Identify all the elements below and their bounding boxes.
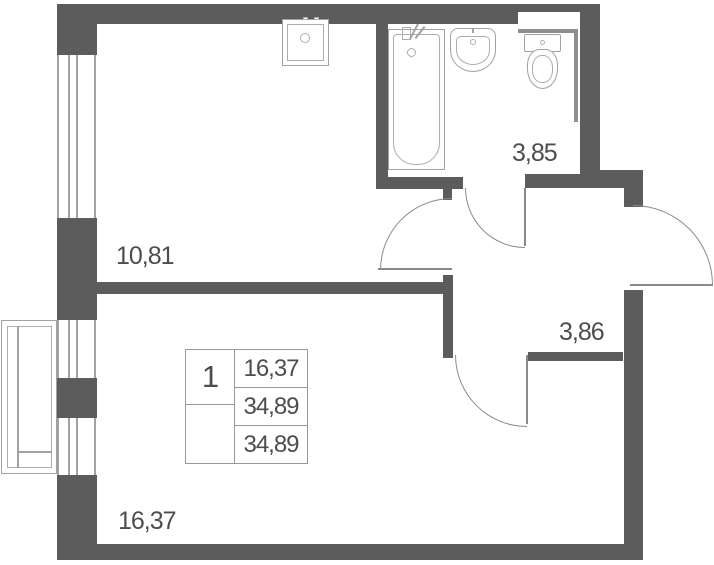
room-label-bathroom: 3,85 <box>512 139 557 168</box>
wall-left-pier-4 <box>57 475 97 560</box>
wall-kitchen-bottom <box>57 282 443 294</box>
window-1-inner-line <box>94 55 96 218</box>
window-1-frame-line-b <box>76 55 78 218</box>
window-3-frame-line-b <box>76 418 78 475</box>
kitchen-door-arc <box>380 198 452 270</box>
room-label-hallway: 3,86 <box>559 318 604 347</box>
room-label-kitchen: 10,81 <box>116 242 174 271</box>
info-table-row-living-area: 16,37 <box>235 350 307 388</box>
wall-left-pier-1 <box>57 4 97 55</box>
wall-hall-room-divider <box>528 352 623 361</box>
wall-right-upper <box>580 4 600 170</box>
wall-niche-horizontal <box>518 29 578 33</box>
window-1-outer-line <box>57 55 59 218</box>
window-3-outer-line <box>57 418 59 475</box>
info-table-rooms-count: 1 <box>186 350 234 405</box>
bathroom-door-arc <box>465 188 525 248</box>
wall-right-lower <box>624 290 643 560</box>
balcony-sill-line <box>18 451 52 453</box>
window-2-frame-line-b <box>76 320 78 378</box>
window-3-inner-line <box>94 418 96 475</box>
wall-kitchen-bathroom-divider <box>376 24 388 189</box>
window-2-inner-line <box>94 320 96 378</box>
floor-plan-canvas: 10,81 3,85 3,86 16,37 1 16,37 34,89 34,8… <box>0 0 714 565</box>
balcony-inner-frame <box>7 326 52 468</box>
window-3-frame-line-a <box>68 418 70 475</box>
wall-jamb-lower <box>443 275 453 358</box>
room-label-living-room: 16,37 <box>118 507 176 536</box>
info-table-row-total-area-2: 34,89 <box>235 426 307 463</box>
balcony-glazing-line <box>17 326 19 468</box>
info-table-left-column: 1 <box>186 350 235 463</box>
info-table-row-total-area: 34,89 <box>235 388 307 426</box>
room-door-arc <box>455 355 527 427</box>
window-2-frame-line-a <box>68 320 70 378</box>
wall-bottom <box>57 544 643 560</box>
wall-left-pier-3 <box>57 378 97 418</box>
info-table-right-column: 16,37 34,89 34,89 <box>235 350 307 463</box>
wall-niche-vertical <box>574 29 578 122</box>
window-2-outer-line <box>57 320 59 378</box>
info-table: 1 16,37 34,89 34,89 <box>185 349 308 464</box>
wall-bathroom-bottom-right <box>525 174 600 188</box>
window-1-frame-line-a <box>68 55 70 218</box>
info-table-empty-cell <box>186 405 234 463</box>
entrance-door-arc <box>633 205 713 285</box>
wall-left-pier-2 <box>57 218 97 320</box>
